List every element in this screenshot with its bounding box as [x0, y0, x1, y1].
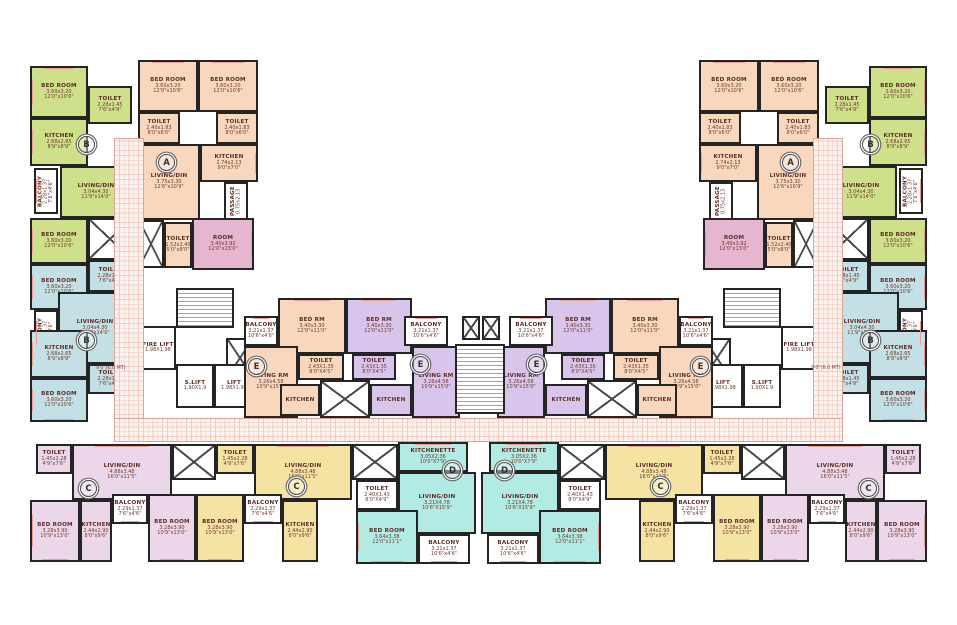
room-label: TOILET1.52x2.405'0"x8'0" — [767, 224, 791, 266]
window-door-mark — [160, 559, 185, 562]
room-label: BALCONY3.21x1.3710'6"x4'6" — [246, 318, 276, 344]
unit-circle-C-right: C — [652, 478, 669, 495]
room-dimension: 7'6"x4'6" — [118, 512, 141, 518]
room-dimension: 7'6"x4'6" — [251, 512, 274, 518]
room-label: BALCONY3.21x1.3710'6"x4'6" — [511, 318, 551, 344]
room-pink-right: ROOM3.40x3.9212'0"x13'0" — [703, 218, 765, 270]
room-dimension: 9'0"x7'0" — [217, 166, 240, 172]
window-door-mark — [883, 66, 913, 69]
room-dimension: 12'0"x13'0" — [719, 247, 748, 253]
room-dimension: 12'0"x10'6" — [883, 95, 912, 101]
room-label: BED ROOM3.28x3.9010'9"x13'0" — [763, 496, 807, 560]
room-pink: ROOM3.40x3.9212'0"x13'0" — [192, 218, 254, 270]
toilet-c-yellow-right: TOILET1.45x2.284'9"x7'6" — [703, 444, 741, 474]
room-dimension: 10'6"x4'6" — [248, 334, 274, 340]
kitchen-e-purple-right: KITCHEN — [545, 384, 587, 416]
room-dimension: 12'6"x10'9" — [154, 185, 183, 191]
room-label: TOILET1.45x2.284'9"x7'6" — [705, 446, 739, 472]
room-dimension: 8'0"x9'6" — [84, 534, 107, 540]
toilet-green-top-right: TOILET2.28x1.457'6"x4'9" — [825, 86, 869, 124]
floor-plan: BED ROOM3.60x3.2012'0"x10'6"BED ROOM3.60… — [0, 0, 957, 625]
unit-circle-B-right: B — [862, 136, 879, 153]
toilet-a-3-right: TOILET1.52x2.405'0"x8'0" — [765, 222, 793, 268]
room-dimension: 12'0"x11'0" — [364, 329, 393, 335]
room-label: KITCHEN — [639, 386, 675, 414]
corridor-hatch-left-right — [813, 138, 843, 420]
room-dimension: 0.75x2.13 — [721, 188, 727, 213]
room-dimension: 11'9"x14'0" — [846, 195, 875, 201]
balcony-green: BALCONY2.28x1.377'6"x4'6" — [34, 168, 58, 214]
room-label: BALCONY2.28x1.377'6"x4'6" — [901, 170, 921, 212]
window-door-mark — [561, 298, 596, 301]
room-label: BALCONY2.29x1.377'6"x4'6" — [811, 496, 843, 522]
window-door-mark — [255, 153, 258, 172]
fire-lift: FIRE LIFT1.98X1.98 — [140, 326, 176, 370]
kitchen-c-mauve: KITCHEN2.44x2.908'0"x9'6" — [80, 500, 112, 562]
unit-circle-C-right: C — [860, 480, 877, 497]
balcony-c-yellow-right: BALCONY2.29x1.377'6"x4'6" — [675, 494, 713, 524]
room-label: BALCONY2.29x1.377'6"x4'6" — [246, 496, 280, 522]
unit-circle-A-right: A — [782, 154, 799, 171]
window-door-mark — [554, 561, 586, 564]
room-label: BALCONY3.21x1.3710'6"x4'6" — [681, 318, 711, 344]
fire-lift-right: FIRE LIFT1.98X1.98 — [781, 326, 817, 370]
toilet-e-purple-right: TOILET2.43X1.358'0"X4'5" — [561, 354, 605, 380]
s-lift: S.LIFT1.90X1.9 — [176, 364, 214, 408]
window-door-mark — [121, 521, 139, 524]
room-label: BED RM3.40x3.3012'0"x11'0" — [547, 300, 609, 352]
room-label: S.LIFT1.90X1.9 — [745, 366, 779, 406]
balcony-e-inner: BALCONY3.21x1.3710'6"x4'6" — [404, 316, 448, 346]
room-dimension: 10'0"X7'9" — [511, 460, 538, 466]
room-dimension: 9'0"x7'0" — [716, 166, 739, 172]
room-label: BED ROOM3.60x3.2012'0"x10'6" — [32, 380, 86, 420]
room-dimension: 12'0"x13'0" — [208, 247, 237, 253]
window-door-mark — [294, 298, 330, 301]
toilet-a-2: TOILET2.40x1.838'0"x6'0" — [216, 112, 258, 144]
room-dimension: 8'0"X4'5" — [362, 370, 386, 376]
room-label: BED ROOM3.60x3.2012'0"x10'6" — [761, 62, 817, 110]
room-dimension: 12'0"x10'6" — [883, 403, 912, 409]
room-label: KITCHEN2.74x2.139'0"x7'0" — [701, 146, 755, 180]
room-dimension: 10'6"X15'9" — [505, 506, 535, 512]
window-door-mark — [415, 316, 437, 319]
window-door-mark — [500, 561, 527, 564]
room-label: BED ROOM3.64x3.3812'0"x11'1" — [358, 512, 416, 562]
room-label: BED ROOM3.60x3.2012'0"x10'6" — [871, 380, 925, 420]
room-label: BED ROOM3.28x3.9010'9"x13'0" — [150, 496, 194, 560]
window-door-mark — [42, 559, 68, 562]
kitchen-c-yellow-right: KITCHEN2.44x2.908'0"x9'6" — [639, 500, 675, 562]
s-lift-right: S.LIFT1.90X1.9 — [743, 364, 781, 408]
room-label: ROOM3.40x3.9212'0"x13'0" — [194, 220, 252, 268]
room-name: KITCHEN — [377, 397, 406, 403]
kitchen-c-mauve-right: KITCHEN2.44x2.908'0"x9'6" — [845, 500, 877, 562]
window-door-mark — [44, 419, 74, 422]
toilet-a-3: TOILET1.52x2.405'0"x8'0" — [164, 222, 192, 268]
room-label: BED ROOM3.60x3.2012'0"x10'6" — [200, 62, 256, 110]
bedroom-c-mauve-1-right: BED ROOM3.28x3.9010'9"x13'0" — [877, 500, 927, 562]
room-dimension: 1.98X1.98 — [786, 348, 812, 354]
balcony-c-mauve: BALCONY2.29x1.377'6"x4'6" — [112, 494, 148, 524]
room-label: KITCHEN — [547, 386, 585, 414]
room-label: BED ROOM3.60x3.2012'0"x10'6" — [32, 68, 86, 116]
toilet-green-top: TOILET2.28x1.457'6"x4'9" — [88, 86, 132, 124]
bedroom-c-yellow: BED ROOM3.28x3.9010'9"x13'0" — [196, 494, 244, 562]
window-door-mark — [362, 298, 397, 301]
room-dimension: 1.90X1.9 — [184, 386, 207, 392]
window-door-mark — [208, 559, 233, 562]
room-dimension: 8'0"x9'6" — [288, 534, 311, 540]
room-dimension: 12'0"x10'6" — [153, 89, 182, 95]
toilet-e-peach-right: TOILET2.43X1.358'0"X4'5" — [613, 354, 659, 380]
room-label: KITCHEN2.44x2.908'0"x9'6" — [82, 502, 110, 560]
room-label: TOILET2.43X1.358'0"X4'5" — [354, 356, 394, 378]
room-label: TOILET2.40X1.438'0"X4'9" — [358, 482, 396, 508]
room-dimension: 7'6"x4'6" — [815, 512, 838, 518]
window-door-mark — [30, 389, 33, 411]
room-dimension: 12'0"x10'6" — [774, 89, 803, 95]
room-dimension: 5'0"x8'0" — [166, 248, 189, 254]
room-label: BED RM3.40x3.3012'0"x11'0" — [348, 300, 410, 352]
room-dimension: 12'0"x10'6" — [44, 95, 73, 101]
window-door-mark — [30, 342, 33, 367]
room-dimension: 8'0"X4'9" — [568, 498, 592, 504]
room-dimension: 10'9"x13'0" — [722, 531, 751, 537]
room-name: KITCHEN — [643, 397, 672, 403]
kitchen-a: KITCHEN2.74x2.139'0"x7'0" — [200, 144, 258, 182]
room-label: KITCHEN — [372, 386, 410, 414]
room-dimension: 16'0"x11'5" — [820, 475, 849, 481]
window-door-mark — [773, 60, 804, 63]
room-label: BED ROOM3.28x3.9010'9"x13'0" — [198, 496, 242, 560]
window-door-mark — [889, 559, 915, 562]
window-door-mark — [924, 515, 927, 547]
duct-d — [352, 444, 398, 480]
room-dimension: 10'9"x15'0" — [421, 385, 450, 391]
bedroom-green-top: BED ROOM3.60x3.2012'0"x10'6" — [30, 66, 88, 118]
window-door-mark — [713, 60, 744, 63]
duct-center-1 — [462, 316, 480, 340]
window-door-mark — [883, 419, 913, 422]
window-door-mark — [725, 559, 750, 562]
corridor-hatch-left — [114, 138, 144, 420]
window-door-mark — [924, 342, 927, 367]
room-label: BALCONY3.21x1.3710'6"x4'6" — [406, 318, 446, 344]
window-door-mark — [688, 316, 705, 319]
balcony-d-right: BALCONY3.21x1.3710'6"x4'6" — [487, 534, 539, 564]
room-dimension: 10'9"x13'0" — [770, 531, 799, 537]
room-label: BED RM3.40x3.3012'0"x11'0" — [613, 300, 677, 352]
room-label: TOILET2.40x1.838'0"x6'0" — [140, 114, 178, 142]
room-dimension: 8'0"X4'5" — [571, 370, 595, 376]
window-door-mark — [924, 275, 927, 299]
room-dimension: 8'9"x8'9" — [47, 357, 70, 363]
unit-circle-D-right: D — [496, 462, 513, 479]
bedrm-e-purple: BED RM3.40x3.3012'0"x11'0" — [346, 298, 412, 354]
room-dimension: 0.75x2.13 — [236, 188, 242, 213]
window-door-mark — [34, 179, 37, 203]
room-dimension: 4'9"x7'6" — [223, 462, 246, 468]
stair-core — [176, 288, 234, 328]
room-label: BED ROOM3.60x3.2012'0"x10'6" — [32, 220, 86, 262]
room-label: ROOM3.40x3.9212'0"x13'0" — [705, 220, 763, 268]
room-dimension: 10'9"x13'0" — [157, 531, 186, 537]
room-dimension: 7'6"x4'9" — [835, 108, 858, 114]
kitchen-e-peach: KITCHEN — [280, 384, 320, 416]
room-label: BALCONY3.21x1.3710'6"x4'6" — [489, 536, 537, 562]
room-label: BED ROOM3.60x3.2012'0"x10'6" — [701, 62, 757, 110]
room-dimension: 8'0"x6'0" — [225, 131, 248, 137]
toilet-c-yellow: TOILET1.45x2.284'9"x7'6" — [216, 444, 254, 474]
window-door-mark — [30, 275, 33, 299]
stair-center — [455, 344, 505, 414]
window-door-mark — [95, 444, 149, 447]
stair-e-right — [587, 380, 637, 418]
window-door-mark — [30, 130, 33, 155]
room-dimension: 12'0"x11'0" — [630, 329, 659, 335]
bedroom-green-2: BED ROOM3.60x3.2012'0"x10'6" — [30, 218, 88, 264]
room-dimension: 12'0"x10'6" — [714, 89, 743, 95]
room-dimension: 8'0"X4'5" — [309, 370, 333, 376]
window-door-mark — [30, 515, 33, 547]
room-dimension: 7'6"x4'6" — [682, 512, 705, 518]
room-dimension: 1.98X1.98 — [221, 386, 247, 392]
duct-c — [172, 444, 216, 480]
room-label: TOILET2.43X1.358'0"X4'5" — [615, 356, 657, 378]
bedroom-green-2-right: BED ROOM3.60x3.2012'0"x10'6" — [869, 218, 927, 264]
room-dimension: 12'0"x11'1" — [372, 540, 401, 546]
window-door-mark — [598, 523, 601, 551]
room-dimension: 10'6"x4'6" — [518, 334, 544, 340]
window-door-mark — [415, 442, 452, 445]
room-label: BED RM3.40x3.3012'0"x11'0" — [280, 300, 344, 352]
unit-circle-E-right: E — [692, 358, 709, 375]
room-dimension: 8'9"x8'9" — [886, 145, 909, 151]
room-dimension: 8'0"x9'6" — [849, 534, 872, 540]
room-label: FIRE LIFT1.98X1.98 — [783, 328, 815, 368]
passage-a-right: PASSAGE0.75x2.13 — [709, 182, 733, 220]
unit-circle-A: A — [158, 154, 175, 171]
window-door-mark — [277, 444, 330, 447]
unit-circle-C: C — [288, 478, 305, 495]
window-door-mark — [684, 521, 703, 524]
unit-circle-C: C — [80, 480, 97, 497]
room-label: TOILET2.28x1.457'6"x4'9" — [90, 88, 130, 122]
toilet-c-mauve-right: TOILET1.45x2.284'9"x7'6" — [885, 444, 921, 474]
room-dimension: 12'0"x10'6" — [44, 403, 73, 409]
stair-e — [320, 380, 370, 418]
window-door-mark — [506, 442, 543, 445]
bedroom-c-yellow-right: BED ROOM3.28x3.9010'9"x13'0" — [713, 494, 761, 562]
balcony-e-outer-right: BALCONY3.21x1.3710'6"x4'6" — [679, 316, 713, 346]
room-label: PASSAGE0.75x2.13 — [711, 184, 731, 218]
room-label: TOILET1.45x2.284'9"x7'6" — [218, 446, 252, 472]
room-dimension: 10'6"X15'9" — [422, 506, 452, 512]
room-dimension: 8'0"x9'6" — [645, 534, 668, 540]
bedroom-green-top-right: BED ROOM3.60x3.2012'0"x10'6" — [869, 66, 927, 118]
window-door-mark — [924, 130, 927, 155]
room-label: BED ROOM3.60x3.2012'0"x10'6" — [871, 68, 925, 116]
room-dimension: 12'0"x10'6" — [213, 89, 242, 95]
room-dimension: 4'9"x7'6" — [42, 462, 65, 468]
bedroom-c-mauve-1: BED ROOM3.28x3.9010'9"x13'0" — [30, 500, 80, 562]
room-dimension: 12'0"x10'6" — [44, 244, 73, 250]
duct-c-right — [741, 444, 785, 480]
window-door-mark — [520, 316, 542, 319]
room-label: BALCONY2.28x1.377'6"x4'6" — [36, 170, 56, 212]
room-label: BALCONY2.29x1.377'6"x4'6" — [677, 496, 711, 522]
room-dimension: 7'6"x4'6" — [49, 179, 55, 202]
toilet-a-2-right: TOILET2.40x1.838'0"x6'0" — [699, 112, 741, 144]
stair-core-right — [723, 288, 781, 328]
window-door-mark — [920, 179, 923, 203]
balcony-c-yellow: BALCONY2.29x1.377'6"x4'6" — [244, 494, 282, 524]
bedroom-c-mauve-2: BED ROOM3.28x3.9010'9"x13'0" — [148, 494, 196, 562]
window-door-mark — [152, 60, 183, 63]
window-door-mark — [431, 561, 458, 564]
room-label: BED ROOM3.64x3.3812'0"x11'1" — [541, 512, 599, 562]
duct-center-2 — [482, 316, 500, 340]
room-label: BED ROOM3.60x3.2012'0"x10'6" — [140, 62, 196, 110]
room-name: KITCHEN — [286, 397, 315, 403]
room-dimension: 10'9"x13'0" — [205, 531, 234, 537]
window-door-mark — [627, 298, 663, 301]
window-door-mark — [44, 66, 74, 69]
room-dimension: 8'0"X4'9" — [365, 498, 389, 504]
balcony-c-mauve-right: BALCONY2.29x1.377'6"x4'6" — [809, 494, 845, 524]
room-label: KITCHEN2.44x2.908'0"x9'6" — [847, 502, 875, 560]
dimension-annotation-right: 9'0"(6.0 MT) — [811, 366, 841, 371]
room-label: TOILET1.45x2.284'9"x7'6" — [38, 446, 70, 472]
room-label: KITCHEN2.44x2.908'0"x9'6" — [641, 502, 673, 560]
room-dimension: 7'6"x4'9" — [98, 108, 121, 114]
room-dimension: 12'0"x11'0" — [297, 329, 326, 335]
window-door-mark — [253, 521, 272, 524]
room-dimension: 10'6"x4'6" — [683, 334, 709, 340]
window-door-mark — [773, 559, 798, 562]
bedroom-blue-2: BED ROOM3.60x3.2012'0"x10'6" — [30, 378, 88, 422]
room-dimension: 8'9"x8'9" — [886, 357, 909, 363]
room-dimension: 10'6"x4'6" — [431, 552, 457, 558]
window-door-mark — [212, 60, 243, 63]
balcony-d: BALCONY3.21x1.3710'6"x4'6" — [418, 534, 470, 564]
room-label: KITCHEN2.68x2.658'9"x8'9" — [871, 120, 925, 164]
bedroom-c-mauve-2-right: BED ROOM3.28x3.9010'9"x13'0" — [761, 494, 809, 562]
room-dimension: 4'9"x7'6" — [891, 462, 914, 468]
room-dimension: 8'0"x6'0" — [786, 131, 809, 137]
toilet-e-peach: TOILET2.43X1.358'0"X4'5" — [298, 354, 344, 380]
room-dimension: 10'0"X7'9" — [420, 460, 447, 466]
window-door-mark — [30, 229, 33, 253]
room-dimension: 10'9"x13'0" — [887, 534, 916, 540]
bedrm-e-purple-right: BED RM3.40x3.3012'0"x11'0" — [545, 298, 611, 354]
room-dimension: 10'6"x4'6" — [413, 334, 439, 340]
room-dimension: 11'9"x14'0" — [81, 195, 110, 201]
room-dimension: 8'0"x6'0" — [147, 131, 170, 137]
window-door-mark — [924, 389, 927, 411]
window-door-mark — [924, 79, 927, 106]
room-dimension: 12'6"x10'9" — [773, 185, 802, 191]
window-door-mark — [808, 444, 862, 447]
room-dimension: 1.98X1.98 — [145, 348, 171, 354]
room-label: TOILET2.40X1.438'0"X4'9" — [561, 482, 599, 508]
balcony-e-inner-right: BALCONY3.21x1.3710'6"x4'6" — [509, 316, 553, 346]
room-label: TOILET2.43X1.358'0"X4'5" — [300, 356, 342, 378]
unit-circle-B-right: B — [862, 332, 879, 349]
room-dimension: 12'0"x11'1" — [555, 540, 584, 546]
room-dimension: 8'0"x6'0" — [708, 131, 731, 137]
room-dimension: 7'6"x4'6" — [914, 179, 920, 202]
kitchen-e-purple: KITCHEN — [370, 384, 412, 416]
room-name: KITCHEN — [552, 397, 581, 403]
passage-a: PASSAGE0.75x2.13 — [224, 182, 248, 220]
room-label: KITCHEN — [282, 386, 318, 414]
room-dimension: 8'0"X4'5" — [624, 370, 648, 376]
room-dimension: 5'0"x8'0" — [767, 248, 790, 254]
window-door-mark — [703, 231, 706, 258]
room-label: KITCHEN2.68x2.658'9"x8'9" — [871, 332, 925, 376]
room-dimension: 1.98X1.98 — [710, 386, 736, 392]
balcony-e-outer: BALCONY3.21x1.3710'6"x4'6" — [244, 316, 278, 346]
window-door-mark — [30, 79, 33, 106]
room-dimension: 8'9"x8'9" — [47, 145, 70, 151]
toilet-e-purple: TOILET2.43X1.358'0"X4'5" — [352, 354, 396, 380]
room-label: PASSAGE0.75x2.13 — [226, 184, 246, 218]
bedroom-a-2: BED ROOM3.60x3.2012'0"x10'6" — [198, 60, 258, 112]
room-label: BALCONY3.21x1.3710'6"x4'6" — [420, 536, 468, 562]
dimension-annotation: 9'0"(6.0 MT) — [96, 366, 126, 371]
window-door-mark — [818, 521, 836, 524]
unit-circle-E: E — [412, 356, 429, 373]
room-dimension: 12'0"x11'0" — [563, 329, 592, 335]
unit-circle-E-right: E — [528, 356, 545, 373]
room-label: TOILET2.28x1.457'6"x4'9" — [827, 88, 867, 122]
room-dimension: 1.90X1.9 — [751, 386, 774, 392]
room-label: KITCHEN2.44x2.908'0"x9'6" — [284, 502, 316, 560]
room-label: KITCHEN2.74x2.139'0"x7'0" — [202, 146, 256, 180]
toilet-d-right: TOILET2.40X1.438'0"X4'9" — [559, 480, 601, 510]
toilet-d: TOILET2.40X1.438'0"X4'9" — [356, 480, 398, 510]
room-dimension: 10'6"x4'6" — [500, 552, 526, 558]
unit-circle-B: B — [78, 332, 95, 349]
window-door-mark — [356, 523, 359, 551]
room-label: TOILET2.40x1.838'0"x6'0" — [218, 114, 256, 142]
corridor-hatch-main — [114, 418, 843, 442]
toilet-a-1: TOILET2.40x1.838'0"x6'0" — [138, 112, 180, 144]
room-label: TOILET2.40x1.838'0"x6'0" — [701, 114, 739, 142]
room-label: TOILET2.40x1.838'0"x6'0" — [779, 114, 817, 142]
room-label: S.LIFT1.90X1.9 — [178, 366, 212, 406]
bedroom-a-2-right: BED ROOM3.60x3.2012'0"x10'6" — [699, 60, 759, 112]
bedroom-a-1: BED ROOM3.60x3.2012'0"x10'6" — [138, 60, 198, 112]
room-label: BED ROOM3.28x3.9010'9"x13'0" — [32, 502, 78, 560]
kitchen-e-peach-right: KITCHEN — [637, 384, 677, 416]
unit-circle-B: B — [78, 136, 95, 153]
kitchen-c-yellow: KITCHEN2.44x2.908'0"x9'6" — [282, 500, 318, 562]
room-dimension: 16'0"x11'5" — [107, 475, 136, 481]
bedroom-d-right: BED ROOM3.64x3.3812'0"x11'1" — [539, 510, 601, 564]
bedroom-a-1-right: BED ROOM3.60x3.2012'0"x10'6" — [759, 60, 819, 112]
window-door-mark — [371, 561, 403, 564]
window-door-mark — [924, 229, 927, 253]
window-door-mark — [628, 444, 681, 447]
window-door-mark — [251, 231, 254, 258]
unit-circle-D: D — [444, 462, 461, 479]
window-door-mark — [699, 153, 702, 172]
window-door-mark — [253, 316, 270, 319]
balcony-green-right: BALCONY2.28x1.377'6"x4'6" — [899, 168, 923, 214]
